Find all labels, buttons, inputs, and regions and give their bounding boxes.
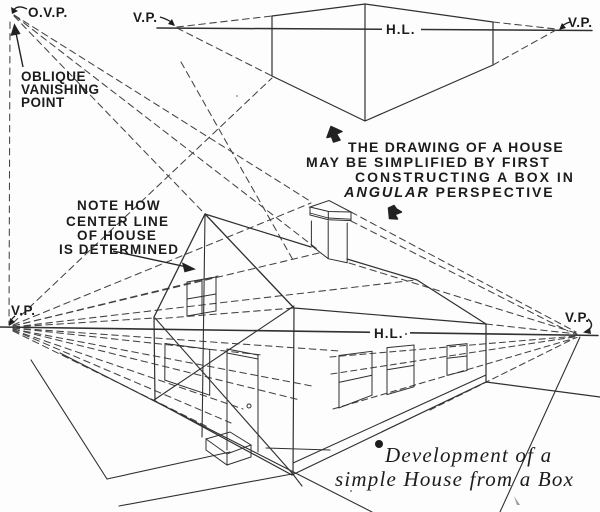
svg-text:H.L.: H.L. xyxy=(386,22,416,37)
svg-text:V.P.: V.P. xyxy=(568,15,593,30)
svg-text:H.L.: H.L. xyxy=(374,326,404,341)
svg-text:O.V.P.: O.V.P. xyxy=(28,5,68,20)
svg-text:MAY BE SIMPLIFIED BY FIRST: MAY BE SIMPLIFIED BY FIRST xyxy=(306,154,550,170)
svg-text:simple House from a Box: simple House from a Box xyxy=(335,467,574,491)
svg-text:V.P.: V.P. xyxy=(11,303,36,318)
svg-text:ANGULAR PERSPECTIVE: ANGULAR PERSPECTIVE xyxy=(343,184,555,201)
svg-text:POINT: POINT xyxy=(21,95,65,110)
svg-text:CONSTRUCTING A BOX IN: CONSTRUCTING A BOX IN xyxy=(355,169,575,185)
svg-text:THE DRAWING OF A HOUSE: THE DRAWING OF A HOUSE xyxy=(348,139,564,155)
svg-text:NOTE HOW: NOTE HOW xyxy=(77,198,161,213)
svg-text:IS DETERMINED: IS DETERMINED xyxy=(59,242,179,257)
svg-text:V.P.: V.P. xyxy=(133,10,158,25)
svg-text:V.P.: V.P. xyxy=(565,310,590,325)
svg-text:OF HOUSE: OF HOUSE xyxy=(77,228,157,243)
svg-text:Development of a: Development of a xyxy=(384,443,552,467)
svg-text:CENTER LINE: CENTER LINE xyxy=(66,214,169,229)
